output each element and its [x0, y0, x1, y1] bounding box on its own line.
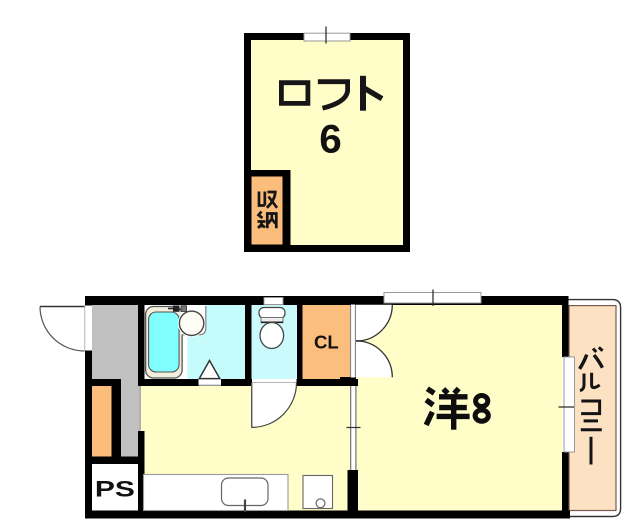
svg-text:6: 6	[319, 118, 342, 162]
svg-text:CL: CL	[314, 331, 339, 352]
svg-text:PS: PS	[95, 476, 135, 501]
